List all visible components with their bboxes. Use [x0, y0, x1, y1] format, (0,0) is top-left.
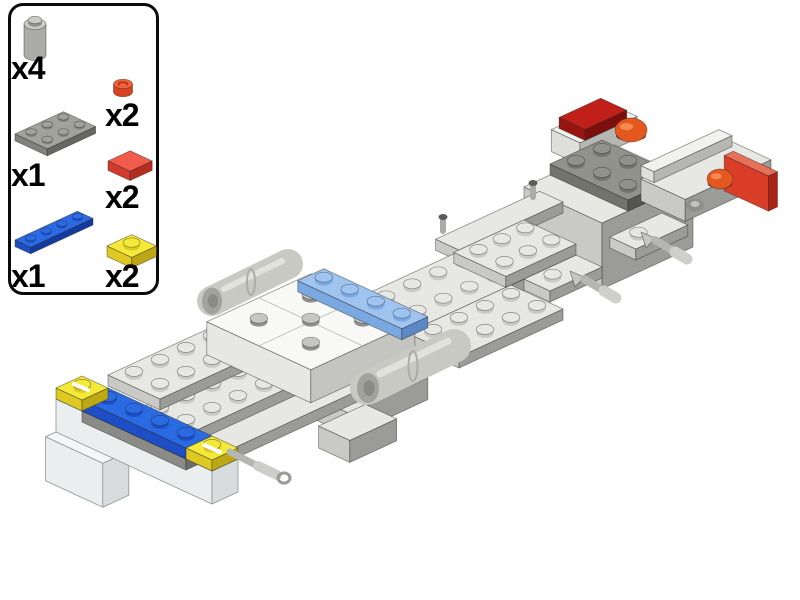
part-thumbnail-tile-1x1-red-icon [105, 144, 157, 184]
thumb-plate-2x3-stud [42, 136, 53, 142]
handle-plate-1-stud [544, 269, 562, 279]
thumb-plate-2x3-stud [74, 121, 85, 127]
raised-plate-2x4-stud [517, 223, 535, 233]
part-thumbnail-plate-2x3-gray-icon [11, 100, 101, 158]
blue-plate-1x4-stud [125, 403, 143, 413]
dark-gray-plate-2x3-stud [593, 167, 611, 177]
blue-plate-1x4-stud [177, 427, 195, 437]
part-quantity-label: x1 [11, 260, 45, 292]
part-quantity-label: x2 [105, 99, 139, 131]
left-wing-plate-stud [151, 354, 169, 364]
thumb-plate-2x3-stud [26, 129, 37, 135]
main-spine-plate-stud [429, 267, 447, 277]
blue-plate-1x4-stud [151, 415, 169, 425]
light-blue-plate-1x4-stud [393, 308, 411, 318]
engine-recess-stud [691, 201, 700, 207]
front-spine-plate-stud [203, 402, 221, 412]
left-barrel-bore [208, 294, 218, 308]
part-thumbnail-plate-1x1-round-red-icon [105, 66, 143, 98]
main-spine-plate-stud [403, 279, 421, 289]
part-quantity-label: x4 [11, 52, 45, 84]
left-wing-plate-stud [177, 366, 195, 376]
part-quantity-label: x2 [105, 181, 139, 213]
light-blue-plate-1x4-stud [341, 284, 359, 294]
dark-gray-plate-2x3-stud [593, 143, 611, 153]
thumb-plate-2x3-stud [58, 114, 69, 120]
spine-side-plate-stud [476, 300, 494, 310]
front-spine-plate-stud [229, 390, 247, 400]
orange-dome-left [620, 123, 633, 130]
thumb-plate-trans-yellow-stud [123, 238, 140, 248]
part-quantity-label: x2 [105, 260, 139, 292]
dark-gray-plate-2x3-stud [619, 155, 637, 165]
orange-dome-left [615, 118, 647, 142]
thumb-round-plate-red-recess [119, 83, 127, 87]
thumb-plate-1x4-blue-stud [57, 220, 68, 226]
spine-side-plate-stud [528, 300, 546, 310]
thumb-plate-1x4-blue-stud [72, 213, 83, 219]
raised-plate-2x4-stud [519, 246, 537, 256]
raised-plate-2x4-stud [543, 235, 561, 245]
orange-dome-right [711, 173, 722, 179]
main-spine-plate-stud [461, 281, 479, 291]
left-wing-plate-stud [125, 366, 143, 376]
parts-callout-panel: x4 x2 x1 x2 x1 x2 [8, 3, 159, 295]
thumb-plate-1x4-blue-stud [41, 228, 52, 234]
main-spine-plate-stud [435, 293, 453, 303]
left-wing-plate-stud [151, 378, 169, 388]
white-tile-section-stud [250, 313, 268, 323]
right-barrel-bore [364, 380, 375, 396]
spine-side-plate-stud [450, 312, 468, 322]
part-quantity-label: x1 [11, 159, 45, 191]
part-thumbnail-plate-1x4-blue-icon [11, 204, 103, 262]
spine-side-plate-stud [476, 324, 494, 334]
clip-post-1-cap [439, 214, 448, 220]
left-wing-plate-stud [177, 342, 195, 352]
thumb-plate-2x3-stud [42, 121, 53, 127]
white-tile-section-stud [302, 337, 320, 347]
spine-side-plate-stud [502, 312, 520, 322]
rear-red-cap [768, 172, 777, 211]
raised-plate-2x4-stud [493, 234, 511, 244]
orange-dome-right [707, 169, 733, 189]
thumb-round-brick-stud [28, 16, 42, 23]
handle-bar-2-tip [675, 252, 687, 259]
raised-plate-2x4-stud [496, 256, 514, 266]
thumb-plate-1x4-blue-stud [25, 235, 36, 241]
light-blue-plate-1x4-stud [367, 296, 385, 306]
front-antenna-grip [258, 466, 277, 475]
raised-plate-2x4-stud [470, 244, 488, 254]
dark-gray-plate-2x3-stud [567, 155, 585, 165]
handle-bar-1-tip [604, 291, 616, 298]
light-blue-plate-1x4-stud [315, 272, 333, 282]
dark-gray-plate-2x3-stud [619, 179, 637, 189]
lego-instruction-canvas: x4 x2 x1 x2 x1 x2 [0, 0, 800, 600]
thumb-plate-2x3-stud [58, 129, 69, 135]
spine-side-plate-stud [502, 288, 520, 298]
clip-post-2-cap [529, 180, 538, 186]
white-tile-section-stud [302, 313, 320, 323]
